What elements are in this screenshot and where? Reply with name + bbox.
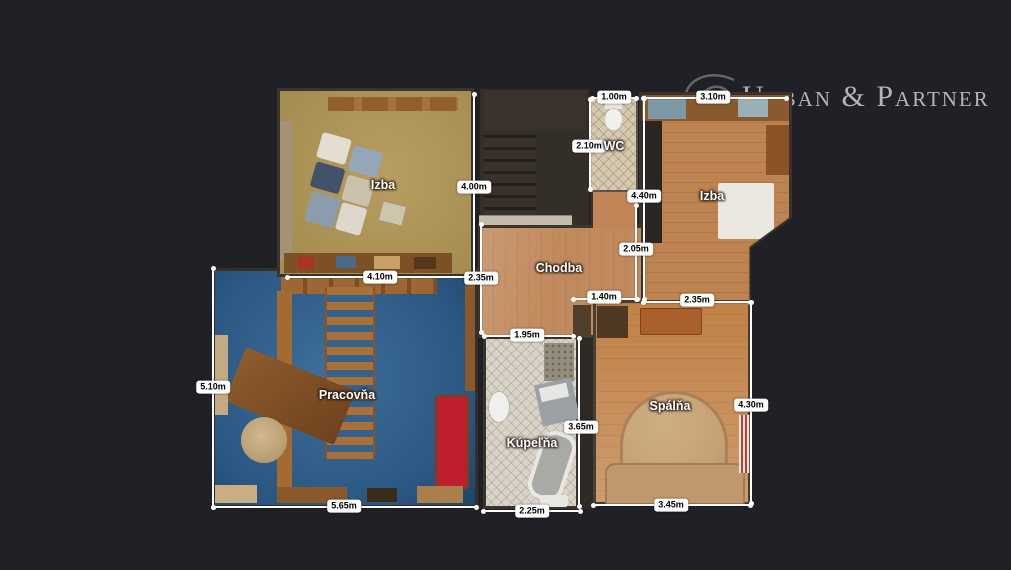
top-cabinet: [640, 308, 702, 335]
room-label-spalna: Spálňa: [650, 399, 691, 413]
cabinet-right: [465, 281, 475, 391]
dim-label: 5.65m: [327, 500, 361, 513]
wall-shelf: [328, 97, 458, 111]
dim-label: 2.35m: [464, 272, 498, 285]
room-label-pracovna: Pracovňa: [319, 388, 375, 402]
sideboard: [417, 486, 463, 503]
dim-label: 2.05m: [619, 243, 653, 256]
bath-rug: [544, 343, 574, 381]
wall-strip: [280, 121, 292, 261]
counter-top: [539, 383, 569, 403]
room-label-wc: WC: [604, 139, 625, 153]
stair-treads: [484, 135, 536, 225]
dim-label: 2.10m: [572, 140, 606, 153]
dim-label: 4.30m: [734, 399, 768, 412]
staircase: [478, 87, 591, 228]
shelf-item: [374, 256, 400, 269]
dim-label: 4.10m: [363, 271, 397, 284]
dim-label: 2.25m: [515, 505, 549, 518]
shelf-item: [414, 257, 436, 269]
dim-label: 1.00m: [597, 91, 631, 104]
dim-label: 1.95m: [510, 329, 544, 342]
sideboard: [215, 485, 257, 503]
room-label-chodba: Chodba: [536, 261, 583, 275]
dim-label: 4.00m: [457, 181, 491, 194]
sofa-cushion: [316, 132, 352, 165]
shelf-item: [298, 257, 314, 269]
curtain: [739, 415, 750, 473]
window-light: [648, 97, 686, 119]
dim-label: 3.10m: [696, 91, 730, 104]
open-door: [597, 306, 628, 338]
sideboard: [367, 488, 397, 502]
sofa-cushion: [310, 161, 346, 194]
sink: [488, 391, 510, 423]
dim-label: 3.45m: [654, 499, 688, 512]
dim-label: 3.65m: [564, 421, 598, 434]
coffee-table: [378, 200, 407, 226]
stair-landing: [484, 91, 586, 131]
room-label-izba-tl: Izba: [371, 178, 395, 192]
sofa-cushion: [335, 202, 368, 236]
shelf: [766, 125, 789, 175]
shelf-item: [336, 256, 356, 268]
floorplan-canvas[interactable]: 4.00m 4.10m 2.35m 1.00m 2.10m 3.10m 4.40…: [0, 0, 1011, 570]
red-couch: [435, 395, 469, 489]
dim-label: 2.35m: [680, 294, 714, 307]
dim-label: 4.40m: [627, 190, 661, 203]
counter: [534, 378, 580, 427]
toilet-bowl: [604, 108, 623, 131]
door-mat: [573, 305, 591, 337]
window-light: [738, 97, 768, 117]
room-label-kupelna: Kúpeľňa: [507, 436, 558, 450]
sofa-cushion: [347, 145, 383, 178]
wall-segment: [642, 121, 662, 243]
room-label-izba-tr: Izba: [700, 189, 724, 203]
white-desk: [718, 183, 774, 239]
cabinet-left: [215, 335, 228, 415]
dim-label: 1.40m: [587, 291, 621, 304]
office-chair: [241, 417, 287, 463]
dim-label: 5.10m: [196, 381, 230, 394]
floorplan-viewer: Urban & Partner: [0, 0, 1011, 570]
